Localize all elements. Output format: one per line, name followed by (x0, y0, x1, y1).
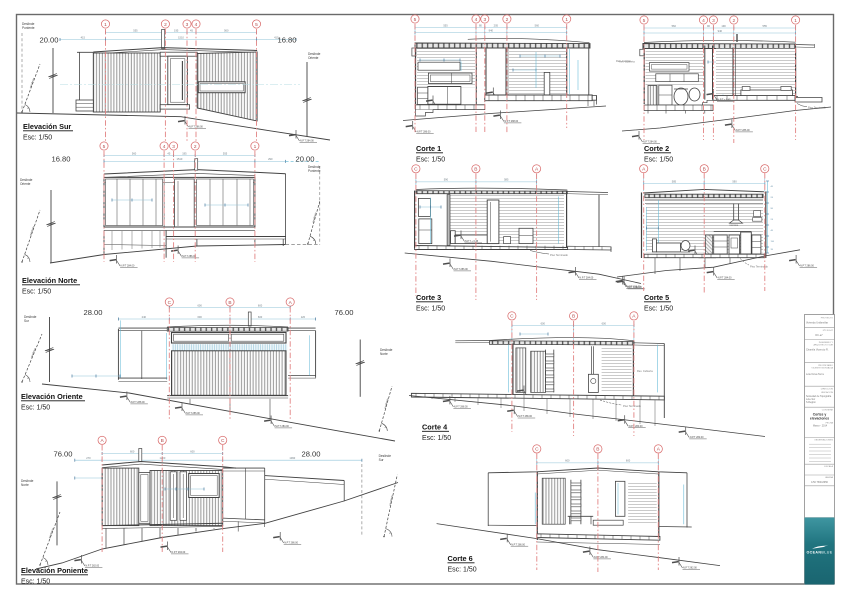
svg-text:Elevación Poniente: Elevación Poniente (21, 566, 88, 575)
svg-text:N.P.T 284.00: N.P.T 284.00 (629, 425, 643, 428)
svg-text:600: 600 (130, 449, 135, 453)
svg-text:270: 270 (86, 456, 91, 460)
svg-text:N.P.T 288.00: N.P.T 288.00 (131, 401, 145, 404)
svg-text:N.P.T 286.00: N.P.T 286.00 (182, 255, 196, 258)
svg-text:1390: 1390 (289, 456, 295, 460)
svg-text:Corte 1: Corte 1 (416, 144, 441, 153)
svg-text:555: 555 (223, 151, 228, 155)
svg-text:28.00: 28.00 (83, 308, 102, 317)
svg-text:555: 555 (133, 28, 138, 32)
svg-text:600: 600 (258, 315, 263, 319)
svg-text:Esc: 1/50: Esc: 1/50 (416, 306, 445, 313)
svg-text:1200: 1200 (160, 456, 166, 460)
svg-text:Marzo - 2014: Marzo - 2014 (813, 424, 828, 427)
svg-text:590: 590 (732, 179, 737, 183)
svg-text:195: 195 (182, 151, 187, 155)
svg-text:B: B (703, 167, 706, 173)
svg-text:Chamila Vicencio R.: Chamila Vicencio R. (806, 348, 829, 351)
svg-text:4: 4 (195, 22, 198, 28)
svg-text:N.P.T + 0.45: N.P.T + 0.45 (465, 240, 479, 243)
svg-text:Corte 5: Corte 5 (644, 293, 669, 302)
svg-text:ESCALA: ESCALA (824, 465, 833, 468)
svg-text:N.P.T + 0.45: N.P.T + 0.45 (718, 99, 732, 102)
svg-text:N.P.T 288.00: N.P.T 288.00 (454, 406, 468, 409)
svg-text:600: 600 (626, 459, 631, 463)
svg-text:N.P.T 284.00: N.P.T 284.00 (580, 277, 594, 280)
svg-text:N.P.T 282.00: N.P.T 282.00 (690, 436, 704, 439)
svg-text:Esc: 1/50: Esc: 1/50 (448, 567, 477, 574)
svg-text:N.P.T 284.00: N.P.T 284.00 (300, 140, 314, 143)
svg-text:N.P.T 284.00: N.P.T 284.00 (718, 277, 732, 280)
svg-text:Esc: 1/50: Esc: 1/50 (22, 289, 51, 296)
svg-text:Corte 6: Corte 6 (448, 554, 473, 563)
svg-text:1510: 1510 (177, 157, 183, 161)
svg-text:N.P.T 282.00: N.P.T 282.00 (628, 286, 642, 289)
svg-text:5: 5 (255, 22, 258, 28)
svg-text:C: C (221, 438, 225, 444)
svg-text:B: B (474, 167, 477, 173)
svg-text:560: 560 (224, 28, 229, 32)
svg-text:Nº3 30147: Nº3 30147 (823, 329, 834, 332)
svg-text:120: 120 (301, 315, 306, 319)
svg-text:N.P.T 286.00: N.P.T 286.00 (518, 415, 532, 418)
svg-text:600: 600 (602, 321, 607, 325)
svg-text:590: 590 (444, 178, 449, 182)
svg-text:600: 600 (190, 449, 195, 453)
svg-text:B: B (228, 300, 231, 306)
svg-text:Elevación Norte: Elevación Norte (22, 276, 77, 285)
svg-text:76.00: 76.00 (53, 450, 72, 459)
svg-text:Esc: 1/50: Esc: 1/50 (644, 157, 673, 164)
svg-text:N.P.T 286.00: N.P.T 286.00 (511, 543, 525, 546)
svg-text:CAMPANA: CAMPANA (729, 224, 739, 227)
svg-text:N.P.T 284.00: N.P.T 284.00 (275, 425, 289, 428)
svg-text:1: 1 (794, 18, 797, 24)
svg-text:Elevación Oriente: Elevación Oriente (21, 392, 83, 401)
svg-text:B: B (572, 314, 575, 320)
svg-text:555: 555 (443, 23, 448, 27)
svg-text:elevaciones: elevaciones (810, 417, 829, 421)
svg-text:560: 560 (535, 23, 540, 27)
svg-text:DIRECCION: DIRECCION (821, 389, 834, 391)
svg-text:Corte 2: Corte 2 (644, 144, 669, 153)
svg-text:290: 290 (268, 157, 273, 161)
svg-text:CONTIENE: CONTIENE (822, 409, 834, 411)
svg-text:N.P.T 286.00: N.P.T 286.00 (186, 412, 200, 415)
svg-text:3: 3 (186, 22, 189, 28)
svg-text:N.P.T 284.00: N.P.T 284.00 (594, 556, 608, 559)
svg-text:600: 600 (197, 303, 202, 307)
svg-text:C: C (763, 167, 767, 173)
svg-text:OCEANBLUE: OCEANBLUE (807, 551, 833, 555)
svg-text:C: C (535, 447, 539, 453)
svg-text:Lote Nova Terra: Lote Nova Terra (806, 373, 824, 376)
svg-text:585: 585 (504, 178, 509, 182)
svg-text:1/50 7500-8956: 1/50 7500-8956 (811, 481, 828, 484)
svg-text:16.80: 16.80 (51, 155, 70, 164)
svg-text:555: 555 (763, 24, 768, 28)
svg-text:VICENTE MONTALVA: VICENTE MONTALVA (811, 366, 833, 369)
svg-text:5: 5 (103, 144, 106, 150)
svg-text:2: 2 (194, 144, 197, 150)
svg-text:C: C (510, 314, 514, 320)
svg-text:4: 4 (163, 144, 166, 150)
svg-text:N.P.T 286.00: N.P.T 286.00 (800, 265, 814, 268)
svg-text:C: C (414, 167, 418, 173)
svg-text:3: 3 (172, 144, 175, 150)
svg-text:Corte 4: Corte 4 (422, 423, 448, 432)
svg-text:190: 190 (721, 24, 726, 28)
svg-text:2: 2 (164, 22, 167, 28)
svg-text:PROPIETARIO: PROPIETARIO (818, 364, 833, 367)
svg-text:N.P.T 286.00: N.P.T 286.00 (454, 268, 468, 271)
svg-text:4: 4 (475, 17, 478, 23)
svg-text:2: 2 (732, 18, 735, 24)
svg-text:1: 1 (565, 17, 568, 23)
svg-text:Piso Terminado: Piso Terminado (623, 404, 641, 408)
svg-text:N.P.T 286.00: N.P.T 286.00 (417, 131, 431, 134)
svg-text:3: 3 (483, 17, 486, 23)
svg-text:16.80: 16.80 (277, 36, 296, 45)
svg-text:5: 5 (414, 17, 417, 23)
svg-text:Elevación Sur: Elevación Sur (23, 122, 71, 131)
svg-text:20.00: 20.00 (39, 36, 58, 45)
svg-text:Oriente: Oriente (20, 182, 31, 186)
svg-text:OBSERVACIONES: OBSERVACIONES (814, 439, 833, 442)
svg-text:Norte: Norte (21, 483, 29, 487)
svg-text:ARQUITECTO SUR: ARQUITECTO SUR (813, 344, 833, 347)
svg-text:20.00: 20.00 (295, 155, 314, 164)
svg-text:600: 600 (258, 303, 263, 307)
svg-text:585: 585 (672, 179, 677, 183)
svg-text:PROYECTO: PROYECTO (821, 318, 834, 320)
svg-text:N.P.T 286.00: N.P.T 286.00 (736, 129, 750, 132)
svg-text:940: 940 (718, 29, 723, 33)
svg-text:560: 560 (132, 151, 137, 155)
svg-text:Piso Terminado: Piso Terminado (750, 264, 768, 268)
svg-text:C: C (168, 300, 172, 306)
svg-text:1510: 1510 (178, 35, 184, 39)
svg-text:600: 600 (541, 321, 546, 325)
svg-text:Vivienda Unifamiliar: Vivienda Unifamiliar (806, 321, 828, 324)
svg-text:B: B (161, 438, 164, 444)
svg-text:Corte 3: Corte 3 (416, 293, 441, 302)
svg-text:600: 600 (565, 459, 570, 463)
svg-text:N.P.T 286.00: N.P.T 286.00 (284, 542, 298, 545)
svg-text:600: 600 (197, 315, 202, 319)
svg-text:4: 4 (702, 18, 705, 24)
svg-text:Oriente: Oriente (308, 56, 319, 60)
svg-text:Poniente: Poniente (22, 26, 35, 30)
svg-text:2: 2 (506, 17, 509, 23)
svg-text:Esc: 1/50: Esc: 1/50 (644, 306, 673, 313)
svg-text:1: 1 (104, 22, 107, 28)
svg-text:Esc: 1/50: Esc: 1/50 (21, 405, 50, 412)
svg-text:940: 940 (489, 28, 494, 32)
svg-text:UBICACION: UBICACION (821, 391, 834, 394)
svg-text:Piso Terminado: Piso Terminado (550, 253, 568, 257)
svg-text:5: 5 (643, 18, 646, 24)
svg-text:3: 3 (712, 18, 715, 24)
svg-text:Norte: Norte (380, 352, 388, 356)
svg-text:Esc: 1/50: Esc: 1/50 (422, 435, 451, 442)
svg-text:Rev. Cubierta: Rev. Cubierta (637, 369, 653, 373)
svg-text:240: 240 (142, 315, 147, 319)
svg-text:Esc: 1/50: Esc: 1/50 (23, 135, 52, 142)
svg-text:415: 415 (81, 35, 86, 39)
svg-text:N.P.T 284.00: N.P.T 284.00 (121, 265, 135, 268)
svg-text:Rev. Cuarton: Rev. Cuarton (616, 59, 632, 63)
svg-text:205: 205 (494, 23, 499, 27)
svg-text:LAMINA: LAMINA (825, 476, 834, 479)
svg-text:560: 560 (672, 24, 677, 28)
svg-text:S.Región: S.Región (806, 401, 817, 404)
svg-text:Poniente: Poniente (308, 169, 321, 173)
svg-text:28.00: 28.00 (301, 450, 320, 459)
svg-text:Esc: 1/50: Esc: 1/50 (21, 579, 50, 586)
svg-text:76.00: 76.00 (334, 308, 353, 317)
svg-text:N.P.T 284.00: N.P.T 284.00 (172, 551, 186, 554)
svg-text:B: B (596, 447, 599, 453)
svg-text:DC-a7: DC-a7 (815, 334, 823, 337)
svg-text:1: 1 (254, 144, 257, 150)
svg-text:Esc: 1/50: Esc: 1/50 (416, 157, 445, 164)
svg-text:N.P.T 282.00: N.P.T 282.00 (683, 567, 697, 570)
svg-text:195: 195 (174, 28, 179, 32)
